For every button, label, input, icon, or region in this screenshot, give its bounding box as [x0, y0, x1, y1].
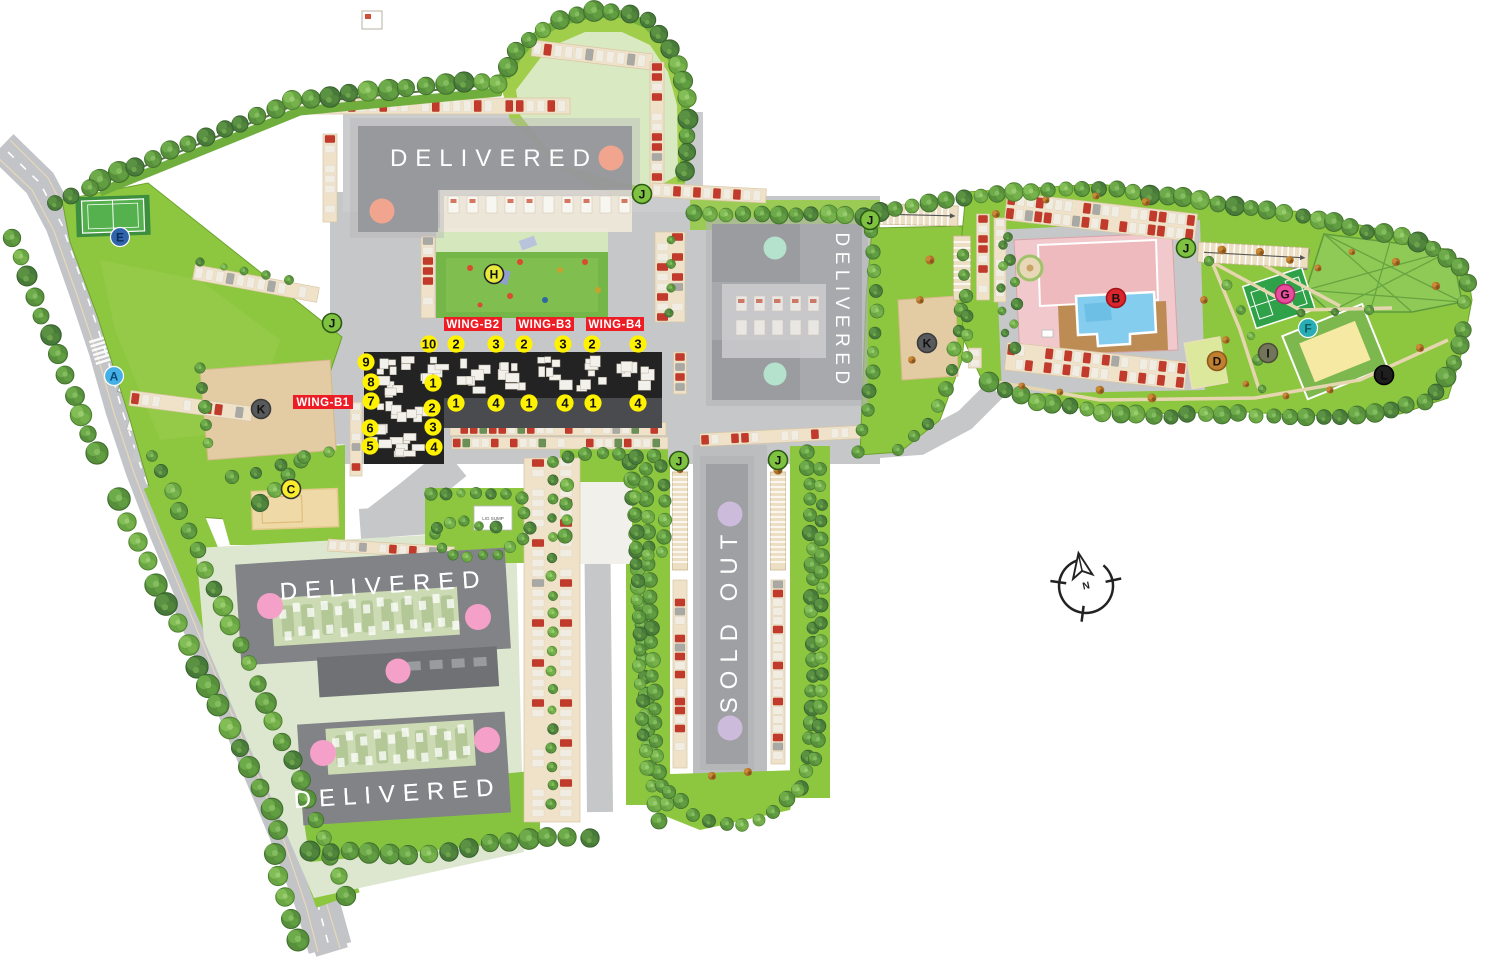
svg-text:3: 3 [559, 336, 566, 351]
svg-text:5: 5 [366, 438, 373, 453]
svg-text:10: 10 [422, 336, 436, 351]
svg-text:G: G [1280, 287, 1289, 301]
svg-text:9: 9 [362, 354, 369, 369]
svg-text:L: L [1380, 368, 1387, 382]
svg-text:DELIVERED: DELIVERED [831, 232, 852, 389]
svg-text:J: J [867, 213, 874, 227]
svg-text:1: 1 [429, 375, 436, 390]
svg-text:J: J [775, 453, 782, 467]
svg-text:3: 3 [634, 336, 641, 351]
svg-text:6: 6 [366, 420, 373, 435]
svg-text:7: 7 [367, 393, 374, 408]
svg-text:F: F [1304, 321, 1311, 335]
svg-text:2: 2 [452, 336, 459, 351]
svg-text:J: J [639, 187, 646, 201]
svg-text:I: I [1266, 346, 1269, 360]
svg-text:B: B [1112, 291, 1121, 305]
svg-text:4: 4 [561, 395, 569, 410]
svg-text:D: D [1213, 354, 1222, 368]
svg-text:1: 1 [452, 395, 459, 410]
svg-text:2: 2 [520, 336, 527, 351]
svg-text:8: 8 [367, 374, 374, 389]
svg-text:LIG SUMP: LIG SUMP [482, 516, 504, 521]
svg-text:1: 1 [525, 395, 532, 410]
svg-text:1: 1 [589, 395, 596, 410]
svg-text:4: 4 [492, 395, 500, 410]
svg-text:J: J [1183, 241, 1190, 255]
svg-text:C: C [287, 482, 296, 496]
svg-text:4: 4 [634, 395, 642, 410]
svg-text:WING-B3: WING-B3 [518, 319, 571, 331]
svg-text:2: 2 [428, 400, 435, 415]
svg-text:H: H [490, 267, 499, 281]
svg-text:DELIVERED: DELIVERED [390, 145, 598, 172]
svg-text:K: K [257, 402, 266, 416]
svg-text:WING-B2: WING-B2 [446, 319, 499, 331]
svg-text:SOLD OUT: SOLD OUT [716, 527, 743, 714]
svg-text:2: 2 [588, 336, 595, 351]
svg-text:3: 3 [429, 419, 436, 434]
svg-text:WING-B1: WING-B1 [296, 397, 349, 409]
svg-text:WING-B4: WING-B4 [588, 319, 641, 331]
svg-text:4: 4 [430, 439, 438, 454]
svg-text:E: E [116, 230, 124, 244]
svg-text:K: K [923, 336, 932, 350]
svg-text:3: 3 [492, 336, 499, 351]
svg-text:J: J [329, 316, 336, 330]
svg-text:A: A [110, 369, 119, 383]
svg-text:J: J [676, 454, 683, 468]
